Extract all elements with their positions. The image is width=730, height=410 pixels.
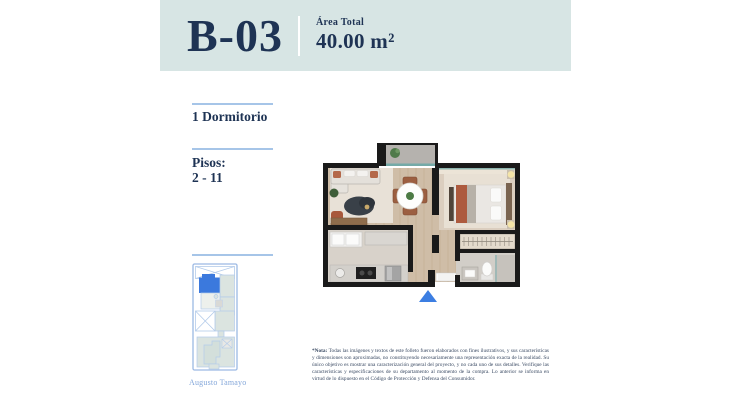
kitchen-island (365, 232, 407, 245)
legal-note-label: *Nota: (312, 348, 327, 354)
lamp-glow-top (508, 171, 515, 178)
floors-range: 2 - 11 (192, 170, 223, 185)
lamp-glow-bottom (508, 221, 515, 228)
bed-pillow-bottom (491, 206, 502, 220)
kitchen-wall-right (408, 230, 413, 272)
legal-note-text: Todas las imágenes y textos de este foll… (312, 348, 549, 382)
kitchen-wall-top (328, 225, 413, 230)
bed-bench (449, 187, 454, 221)
console-table (331, 218, 367, 225)
keyplan: Augusto Tamayo (189, 263, 241, 387)
kitchen-sink (336, 269, 345, 278)
balcony-glass (385, 164, 436, 167)
rule-floors (192, 148, 273, 150)
balcony-wall-left (377, 143, 386, 166)
keyplan-bottom-notch (209, 364, 219, 369)
balcony-floor (379, 145, 436, 166)
shower (497, 255, 515, 282)
bed-pillow-top (491, 188, 502, 202)
floors-label: Pisos: (192, 155, 226, 170)
closet-wall-top (455, 230, 515, 234)
unit-header: B-03 Área Total 40.00 m² (160, 0, 571, 71)
entry-wall-stub (428, 270, 435, 287)
cooktop (356, 267, 376, 279)
header-divider (298, 16, 300, 56)
keyplan-detail-circle (214, 295, 218, 299)
balcony-plant-highlight (395, 149, 399, 153)
legal-note: *Nota: Todas las imágenes y textos de es… (312, 348, 549, 383)
area-value: 40.00 m² (316, 29, 395, 54)
bedroom-partition-upper (432, 168, 439, 215)
bed (449, 183, 512, 225)
keyplan-stair-core-mid (196, 311, 216, 331)
dining-centerpiece (406, 192, 414, 200)
unit-code: B-03 (187, 13, 283, 59)
keyplan-svg (192, 263, 238, 371)
bedroom-partition-lower (432, 235, 439, 253)
keyplan-grey-notch (216, 300, 223, 307)
toilet (482, 262, 492, 276)
closet (460, 234, 515, 249)
sofa-pillow-right (370, 171, 378, 178)
sofa-pillow-left (333, 171, 341, 178)
bathroom-wall-top (455, 249, 520, 253)
area-block: Área Total 40.00 m² (316, 17, 395, 54)
bed-throw (456, 185, 467, 223)
living-plant (330, 189, 339, 198)
entry-doormat (436, 273, 456, 281)
bedrooms-label: 1 Dormitorio (192, 109, 267, 124)
bed-headboard (506, 183, 512, 225)
floorplan-svg (323, 143, 520, 305)
bedroom-window-glass (439, 168, 515, 170)
entrance-marker-icon (419, 290, 437, 302)
rule-bedrooms (192, 103, 273, 105)
keyplan-street-label: Augusto Tamayo (189, 378, 241, 387)
area-label: Área Total (316, 17, 395, 28)
rule-keyplan (192, 254, 273, 256)
keyplan-x-detail (222, 339, 232, 348)
